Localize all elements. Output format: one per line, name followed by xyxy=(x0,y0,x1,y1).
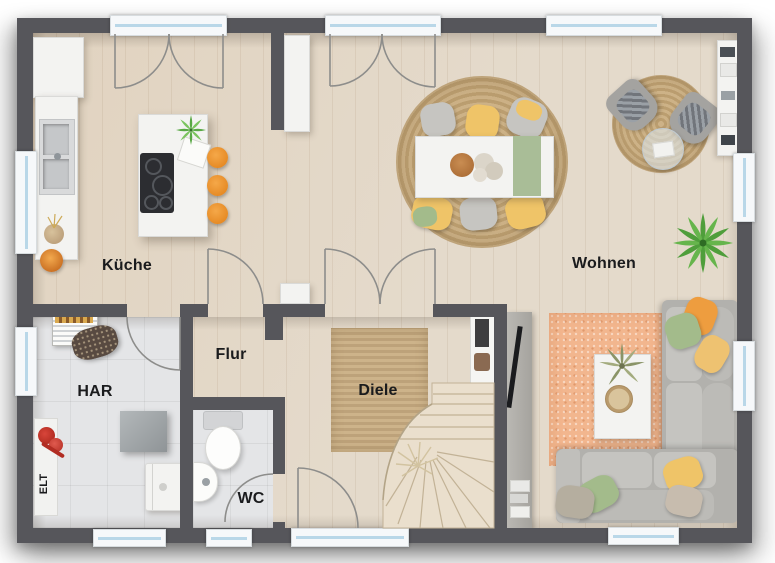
table-runner xyxy=(513,136,541,196)
decor-object xyxy=(474,353,490,371)
wall-har-wc xyxy=(180,317,193,528)
kitchen-sink-unit xyxy=(39,119,75,195)
tv-sideboard xyxy=(507,312,532,529)
books xyxy=(720,113,737,127)
wall-mid-a xyxy=(33,304,127,317)
tv xyxy=(506,326,522,408)
room-label-kueche: Küche xyxy=(102,257,152,275)
dining-chair-grey xyxy=(458,195,498,232)
wohnen-right-window-2 xyxy=(733,341,755,411)
wall-mid-d xyxy=(433,304,507,317)
wall-right xyxy=(737,18,752,543)
stub-wall-cabinet xyxy=(284,35,310,132)
wohnen-right-window-1 xyxy=(733,153,755,222)
laundry-on-rack xyxy=(55,317,93,323)
bar-stool xyxy=(207,175,228,196)
dining-terrace-door xyxy=(325,15,441,36)
wall-wc-right-stub xyxy=(273,522,285,528)
burner xyxy=(144,195,159,210)
books xyxy=(652,141,675,159)
burner xyxy=(159,196,173,210)
lid-handle xyxy=(159,483,167,491)
wall-wc-top xyxy=(193,397,285,410)
books xyxy=(720,63,737,77)
wall-mid-c xyxy=(263,304,325,317)
room-label-wohnen: Wohnen xyxy=(572,255,636,273)
kitchen-left-window xyxy=(15,151,37,254)
books xyxy=(510,480,530,492)
glass-coffee-table xyxy=(642,128,684,170)
room-label-wc: WC xyxy=(237,490,264,508)
burner xyxy=(152,175,173,196)
kitchen-tall-cabinet xyxy=(33,37,84,98)
sink-basin xyxy=(43,159,69,189)
books xyxy=(510,506,530,518)
toilet-bowl xyxy=(205,426,241,470)
living-bottom-window xyxy=(608,527,679,545)
kitchen-terrace-door xyxy=(110,15,227,36)
top-right-window xyxy=(546,15,662,36)
floor-plan: Küche Wohnen Flur Diele HAR WC ELT xyxy=(0,0,775,563)
basin-tap xyxy=(202,478,210,486)
flower-bowl xyxy=(450,153,474,177)
storage-box xyxy=(120,411,167,452)
books xyxy=(510,494,528,503)
har-left-window xyxy=(15,327,37,396)
faucet xyxy=(54,153,61,160)
striped-pillow xyxy=(674,99,713,138)
bar-stool xyxy=(207,147,228,168)
books xyxy=(721,135,735,145)
sink-basin xyxy=(43,124,69,155)
lid-seam xyxy=(152,464,153,510)
fruit-bowl xyxy=(40,249,63,272)
cooktop xyxy=(140,153,174,213)
wall-wc-right xyxy=(273,410,285,474)
wall-stub-kitchen xyxy=(271,33,284,130)
bar-stool xyxy=(207,203,228,224)
wall-left xyxy=(17,18,33,543)
wall-mid-b xyxy=(180,304,208,317)
room-label-elt: ELT xyxy=(38,474,50,495)
washing-machine xyxy=(145,463,184,511)
niche-shelf xyxy=(470,313,496,387)
round-tray xyxy=(605,385,633,413)
wall-stub-flur xyxy=(265,317,283,340)
entry-door-threshold xyxy=(291,528,409,547)
har-bottom-window xyxy=(93,529,166,547)
wc-bottom-window xyxy=(206,529,252,547)
wall-stairs xyxy=(494,317,507,528)
napkin xyxy=(412,205,438,227)
pillow-grey xyxy=(554,484,596,521)
burner xyxy=(145,158,162,175)
books xyxy=(720,47,735,57)
vase xyxy=(44,224,64,244)
room-label-har: HAR xyxy=(77,383,112,401)
decor-frame xyxy=(475,319,489,347)
striped-pillow xyxy=(613,86,653,126)
books xyxy=(721,91,735,100)
room-label-flur: Flur xyxy=(215,346,246,364)
dining-sideboard xyxy=(280,283,310,304)
room-label-diele: Diele xyxy=(358,382,397,400)
